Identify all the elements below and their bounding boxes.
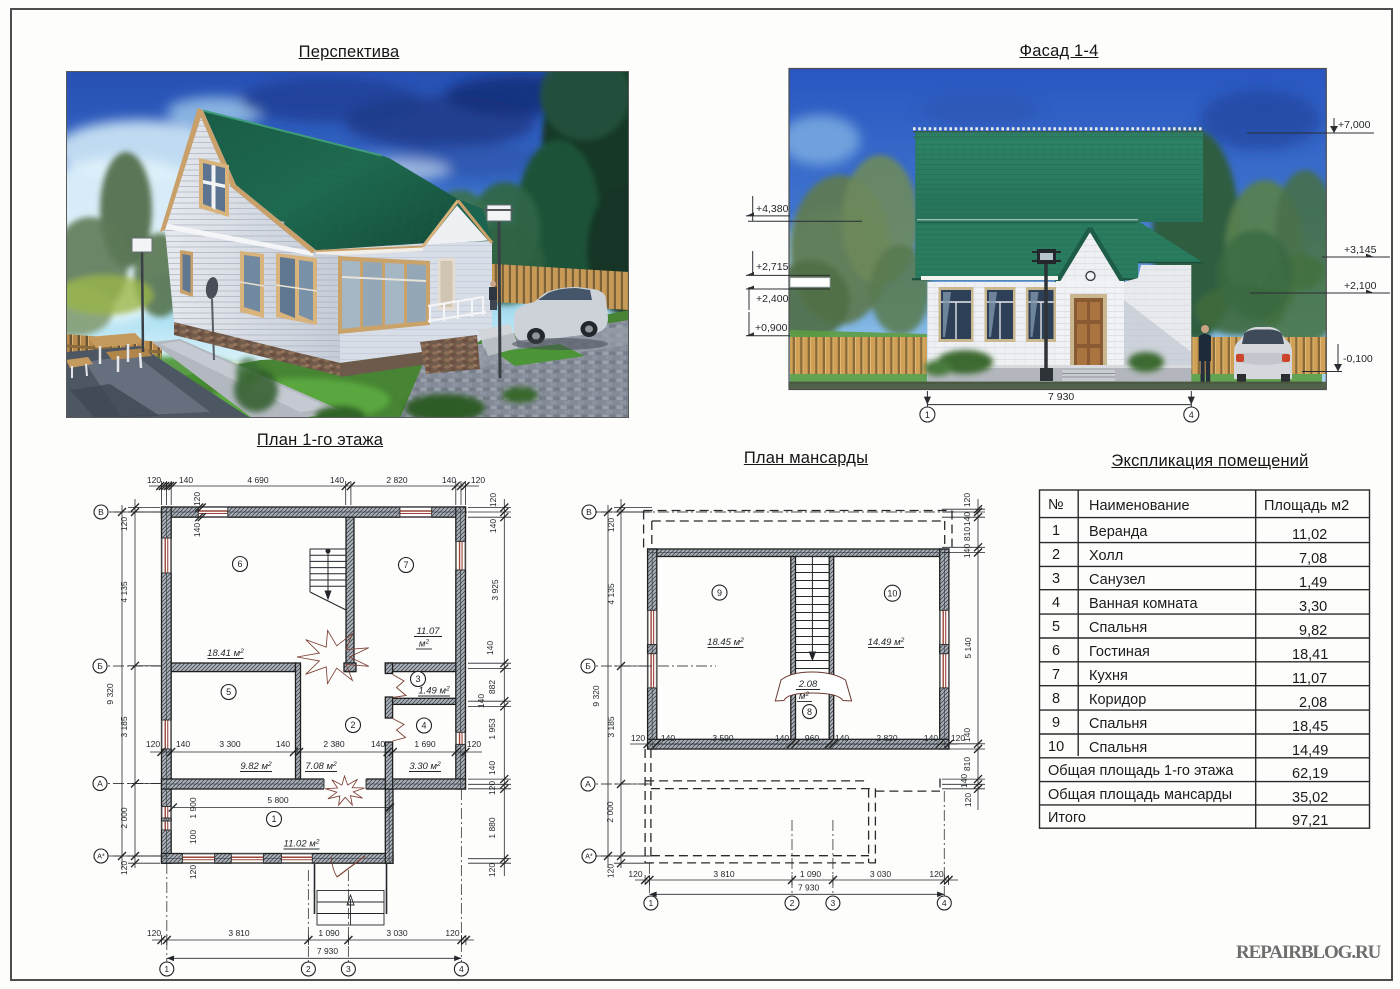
svg-text:6: 6 [237, 559, 242, 569]
svg-text:140: 140 [924, 733, 938, 743]
svg-text:100: 100 [188, 830, 198, 844]
svg-text:140: 140 [488, 519, 498, 533]
svg-text:8: 8 [1052, 691, 1060, 707]
svg-text:10: 10 [887, 588, 897, 598]
svg-text:120: 120 [146, 739, 160, 749]
svg-text:№: № [1048, 497, 1064, 513]
svg-text:882: 882 [487, 680, 497, 694]
svg-text:3 810: 3 810 [228, 928, 250, 938]
svg-text:140: 140 [835, 733, 849, 743]
svg-text:А*: А* [97, 854, 105, 861]
svg-text:1,49: 1,49 [1299, 575, 1327, 591]
svg-text:3: 3 [346, 964, 351, 974]
svg-text:Спальня: Спальня [1089, 620, 1147, 636]
svg-text:м2: м2 [419, 639, 430, 650]
svg-text:18,45: 18,45 [1292, 719, 1328, 735]
svg-text:14,49: 14,49 [1292, 743, 1328, 759]
svg-text:1 090: 1 090 [800, 869, 822, 879]
svg-text:120: 120 [445, 928, 459, 938]
svg-text:+4,380: +4,380 [756, 203, 789, 215]
svg-text:140: 140 [962, 544, 972, 558]
svg-text:3 300: 3 300 [219, 739, 241, 749]
svg-text:9 320: 9 320 [105, 683, 115, 705]
svg-text:3.30 м2: 3.30 м2 [409, 761, 441, 772]
svg-text:7.08 м2: 7.08 м2 [305, 761, 337, 772]
svg-text:120: 120 [471, 475, 485, 485]
svg-text:1: 1 [164, 964, 169, 974]
svg-text:Общая площадь мансарды: Общая площадь мансарды [1048, 787, 1232, 803]
svg-text:3 030: 3 030 [386, 928, 408, 938]
svg-text:3 185: 3 185 [119, 716, 129, 738]
svg-text:120: 120 [488, 493, 498, 507]
svg-text:3: 3 [1052, 571, 1060, 587]
svg-text:140: 140 [476, 694, 486, 708]
svg-text:18,41: 18,41 [1292, 647, 1328, 663]
svg-text:Общая площадь 1-го этажа: Общая площадь 1-го этажа [1048, 763, 1234, 779]
svg-text:120: 120 [606, 864, 616, 878]
svg-text:120: 120 [963, 793, 973, 807]
svg-text:1 953: 1 953 [487, 718, 497, 740]
svg-text:120: 120 [147, 475, 161, 485]
svg-text:140: 140 [371, 739, 385, 749]
svg-text:97,21: 97,21 [1292, 813, 1328, 829]
svg-text:140: 140 [176, 739, 190, 749]
svg-text:Санузел: Санузел [1089, 572, 1146, 588]
svg-text:1: 1 [925, 410, 930, 420]
svg-text:3: 3 [831, 898, 836, 908]
svg-text:Холл: Холл [1089, 548, 1123, 564]
svg-text:+2,400: +2,400 [756, 293, 789, 305]
svg-text:140: 140 [485, 641, 495, 655]
svg-text:м2: м2 [799, 691, 810, 702]
svg-text:4: 4 [942, 898, 947, 908]
svg-text:9.82 м2: 9.82 м2 [240, 761, 272, 772]
svg-text:А: А [97, 779, 103, 789]
svg-text:Спальня: Спальня [1089, 716, 1147, 732]
svg-text:4 135: 4 135 [606, 583, 616, 605]
svg-text:140: 140 [959, 774, 969, 788]
svg-text:-0,100: -0,100 [1343, 353, 1373, 365]
svg-text:7: 7 [403, 560, 408, 570]
svg-text:120: 120 [192, 492, 202, 506]
svg-text:120: 120 [628, 869, 642, 879]
svg-text:1 090: 1 090 [318, 928, 340, 938]
svg-text:7 930: 7 930 [798, 883, 820, 893]
svg-text:6: 6 [1052, 643, 1060, 659]
svg-text:Наименование: Наименование [1089, 498, 1190, 514]
svg-text:140: 140 [962, 728, 972, 742]
svg-text:2,08: 2,08 [1299, 695, 1327, 711]
svg-text:8: 8 [807, 707, 812, 717]
svg-text:2: 2 [1052, 547, 1060, 563]
svg-text:120: 120 [631, 733, 645, 743]
svg-text:140: 140 [330, 475, 344, 485]
svg-text:140: 140 [179, 475, 193, 485]
svg-text:120: 120 [147, 928, 161, 938]
svg-text:7 930: 7 930 [1048, 391, 1074, 403]
svg-text:2 820: 2 820 [876, 733, 898, 743]
svg-text:3 925: 3 925 [490, 579, 500, 601]
svg-text:2 000: 2 000 [605, 801, 615, 823]
svg-text:62,19: 62,19 [1292, 766, 1328, 782]
svg-text:120: 120 [188, 865, 198, 879]
svg-text:5 800: 5 800 [267, 795, 289, 805]
svg-text:А*: А* [585, 854, 593, 861]
svg-text:140: 140 [775, 733, 789, 743]
svg-text:140: 140 [442, 475, 456, 485]
svg-text:9: 9 [717, 588, 722, 598]
svg-text:140: 140 [487, 761, 497, 775]
svg-text:140: 140 [661, 733, 675, 743]
svg-text:3,30: 3,30 [1299, 599, 1327, 615]
svg-text:1 900: 1 900 [188, 797, 198, 819]
svg-text:14.49 м2: 14.49 м2 [868, 637, 905, 648]
svg-text:1: 1 [649, 898, 654, 908]
svg-text:960: 960 [805, 733, 819, 743]
svg-text:7,08: 7,08 [1299, 551, 1327, 567]
svg-text:А: А [585, 779, 591, 789]
svg-text:1: 1 [1052, 523, 1060, 539]
svg-text:Кухня: Кухня [1089, 668, 1128, 684]
svg-text:2 380: 2 380 [323, 739, 345, 749]
svg-text:4: 4 [1189, 410, 1194, 420]
svg-text:10: 10 [1048, 739, 1064, 755]
svg-text:3 030: 3 030 [870, 869, 892, 879]
svg-text:2 000: 2 000 [119, 807, 129, 829]
svg-text:120: 120 [487, 781, 497, 795]
svg-text:120: 120 [119, 517, 129, 531]
svg-text:Спальня: Спальня [1089, 740, 1147, 756]
svg-text:5 140: 5 140 [963, 637, 973, 659]
svg-text:9 320: 9 320 [591, 685, 601, 707]
svg-text:5: 5 [226, 687, 231, 697]
svg-text:Веранда: Веранда [1089, 524, 1148, 540]
svg-text:7 930: 7 930 [317, 946, 339, 956]
svg-text:В: В [586, 507, 592, 517]
svg-text:1 690: 1 690 [414, 739, 436, 749]
svg-text:810: 810 [962, 757, 972, 771]
svg-text:2 820: 2 820 [386, 475, 408, 485]
svg-text:Б: Б [97, 661, 103, 671]
svg-text:9: 9 [1052, 715, 1060, 731]
svg-text:18.41 м2: 18.41 м2 [207, 648, 244, 659]
svg-text:1: 1 [271, 814, 276, 824]
svg-text:7: 7 [1052, 667, 1060, 683]
svg-text:4 135: 4 135 [119, 581, 129, 603]
svg-text:120: 120 [467, 739, 481, 749]
svg-text:5: 5 [1052, 619, 1060, 635]
svg-text:+0,900: +0,900 [755, 322, 788, 334]
svg-text:140: 140 [276, 739, 290, 749]
svg-text:11.02 м2: 11.02 м2 [284, 839, 320, 850]
svg-text:18.45 м2: 18.45 м2 [707, 637, 744, 648]
svg-text:Итого: Итого [1048, 810, 1086, 826]
svg-text:120: 120 [962, 493, 972, 507]
svg-text:Ванная комната: Ванная комната [1089, 596, 1198, 612]
svg-text:+3,145: +3,145 [1344, 244, 1377, 256]
svg-text:+2,715: +2,715 [756, 261, 789, 273]
svg-text:Гостиная: Гостиная [1089, 644, 1150, 660]
svg-text:Площадь м2: Площадь м2 [1264, 498, 1349, 514]
svg-text:2: 2 [350, 720, 355, 730]
svg-text:1.49 м2: 1.49 м2 [418, 686, 450, 697]
svg-text:3 810: 3 810 [713, 869, 735, 879]
svg-text:140: 140 [192, 523, 202, 537]
svg-text:120: 120 [119, 861, 129, 875]
svg-text:+2,100: +2,100 [1344, 280, 1377, 292]
svg-text:3 185: 3 185 [606, 716, 616, 738]
svg-text:2: 2 [790, 898, 795, 908]
svg-text:Коридор: Коридор [1089, 692, 1146, 708]
svg-text:11,07: 11,07 [1292, 671, 1327, 687]
svg-text:120: 120 [487, 863, 497, 877]
svg-text:9,82: 9,82 [1299, 623, 1327, 639]
svg-text:Б: Б [585, 661, 591, 671]
svg-text:11,02: 11,02 [1292, 527, 1327, 543]
svg-text:+7,000: +7,000 [1338, 119, 1371, 131]
svg-text:3: 3 [415, 674, 420, 684]
svg-text:2.08: 2.08 [798, 679, 818, 690]
svg-text:120: 120 [606, 518, 616, 532]
svg-text:4: 4 [1052, 595, 1060, 611]
svg-text:1 880: 1 880 [487, 817, 497, 839]
svg-text:3 590: 3 590 [712, 733, 734, 743]
svg-text:2: 2 [306, 964, 311, 974]
svg-text:4 690: 4 690 [247, 475, 269, 485]
svg-text:В: В [98, 507, 104, 517]
svg-text:11.07: 11.07 [416, 626, 440, 637]
svg-text:4: 4 [421, 721, 426, 731]
svg-text:140: 140 [962, 512, 972, 526]
svg-text:810: 810 [962, 527, 972, 541]
svg-text:4: 4 [459, 964, 464, 974]
svg-text:120: 120 [929, 869, 943, 879]
svg-text:35,02: 35,02 [1292, 790, 1328, 806]
